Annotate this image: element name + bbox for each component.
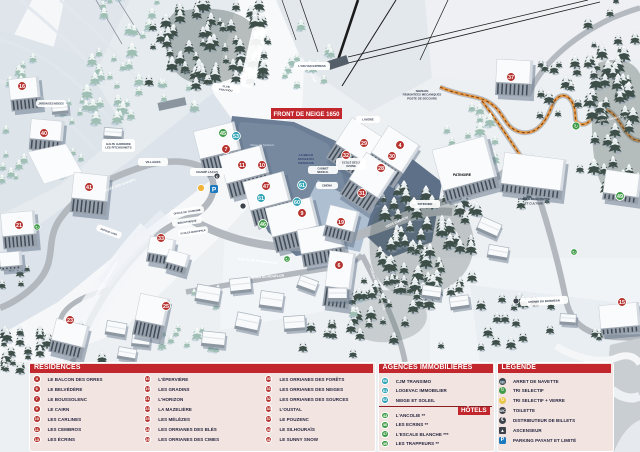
svg-text:4: 4 <box>399 143 402 149</box>
svg-text:32: 32 <box>343 153 349 159</box>
svg-text:9: 9 <box>301 211 304 217</box>
svg-text:31: 31 <box>359 191 365 197</box>
svg-text:7: 7 <box>225 147 228 153</box>
svg-text:29: 29 <box>361 141 367 147</box>
svg-text:51: 51 <box>258 196 264 202</box>
svg-text:23: 23 <box>67 318 73 324</box>
svg-text:FRANCAIS: FRANCAIS <box>298 161 314 165</box>
svg-text:46: 46 <box>260 222 266 228</box>
svg-text:FRONT DE NEIGE 1650: FRONT DE NEIGE 1650 <box>273 112 340 118</box>
svg-text:PATINOIRE: PATINOIRE <box>418 202 433 206</box>
svg-text:CINEMA: CINEMA <box>322 184 332 188</box>
svg-text:ET CULTURE: ET CULTURE <box>525 202 544 206</box>
svg-text:60: 60 <box>294 200 300 206</box>
svg-text:L'ORRIAN EXPRESS: L'ORRIAN EXPRESS <box>298 64 326 68</box>
svg-text:21: 21 <box>16 223 22 229</box>
svg-text:LES PITCHOUNETS: LES PITCHOUNETS <box>105 146 131 150</box>
svg-text:37: 37 <box>508 75 514 81</box>
svg-text:11: 11 <box>239 163 245 169</box>
svg-text:↻: ↻ <box>35 225 39 230</box>
svg-text:ESPACE RENCONTRE: ESPACE RENCONTRE <box>518 197 550 201</box>
svg-text:Place de l'Achard: Place de l'Achard <box>250 143 274 147</box>
svg-text:15: 15 <box>619 300 625 306</box>
svg-text:45: 45 <box>220 131 226 137</box>
svg-text:JARDIN DES NEIGES: JARDIN DES NEIGES <box>38 103 64 106</box>
svg-text:30: 30 <box>389 154 395 160</box>
svg-text:49: 49 <box>617 194 623 200</box>
svg-text:OZONE: OZONE <box>346 164 356 168</box>
svg-text:↻: ↻ <box>572 250 576 255</box>
svg-text:POSTE DE SECOURS: POSTE DE SECOURS <box>407 96 437 100</box>
svg-text:6: 6 <box>338 263 341 269</box>
svg-text:41: 41 <box>86 185 92 191</box>
svg-text:53: 53 <box>233 134 239 140</box>
svg-text:25: 25 <box>163 304 169 310</box>
svg-text:ECOLE DES 2: ECOLE DES 2 <box>342 160 360 164</box>
svg-text:10: 10 <box>259 163 265 169</box>
svg-text:MEDICAL: MEDICAL <box>317 171 329 174</box>
svg-text:16: 16 <box>19 84 25 90</box>
svg-text:28: 28 <box>378 166 384 172</box>
svg-text:LAVERIE: LAVERIE <box>362 118 374 122</box>
svg-text:33: 33 <box>158 236 164 242</box>
svg-text:P: P <box>212 187 217 194</box>
svg-text:CABINET: CABINET <box>317 167 329 170</box>
svg-text:19: 19 <box>338 220 344 226</box>
svg-text:↻: ↻ <box>574 124 578 130</box>
svg-text:40: 40 <box>41 131 47 137</box>
svg-text:VILLAGES: VILLAGES <box>145 160 160 164</box>
svg-text:↻: ↻ <box>285 257 289 262</box>
svg-text:47: 47 <box>263 184 269 190</box>
svg-text:PATINOIRE: PATINOIRE <box>453 173 472 177</box>
svg-text:61: 61 <box>299 183 305 189</box>
